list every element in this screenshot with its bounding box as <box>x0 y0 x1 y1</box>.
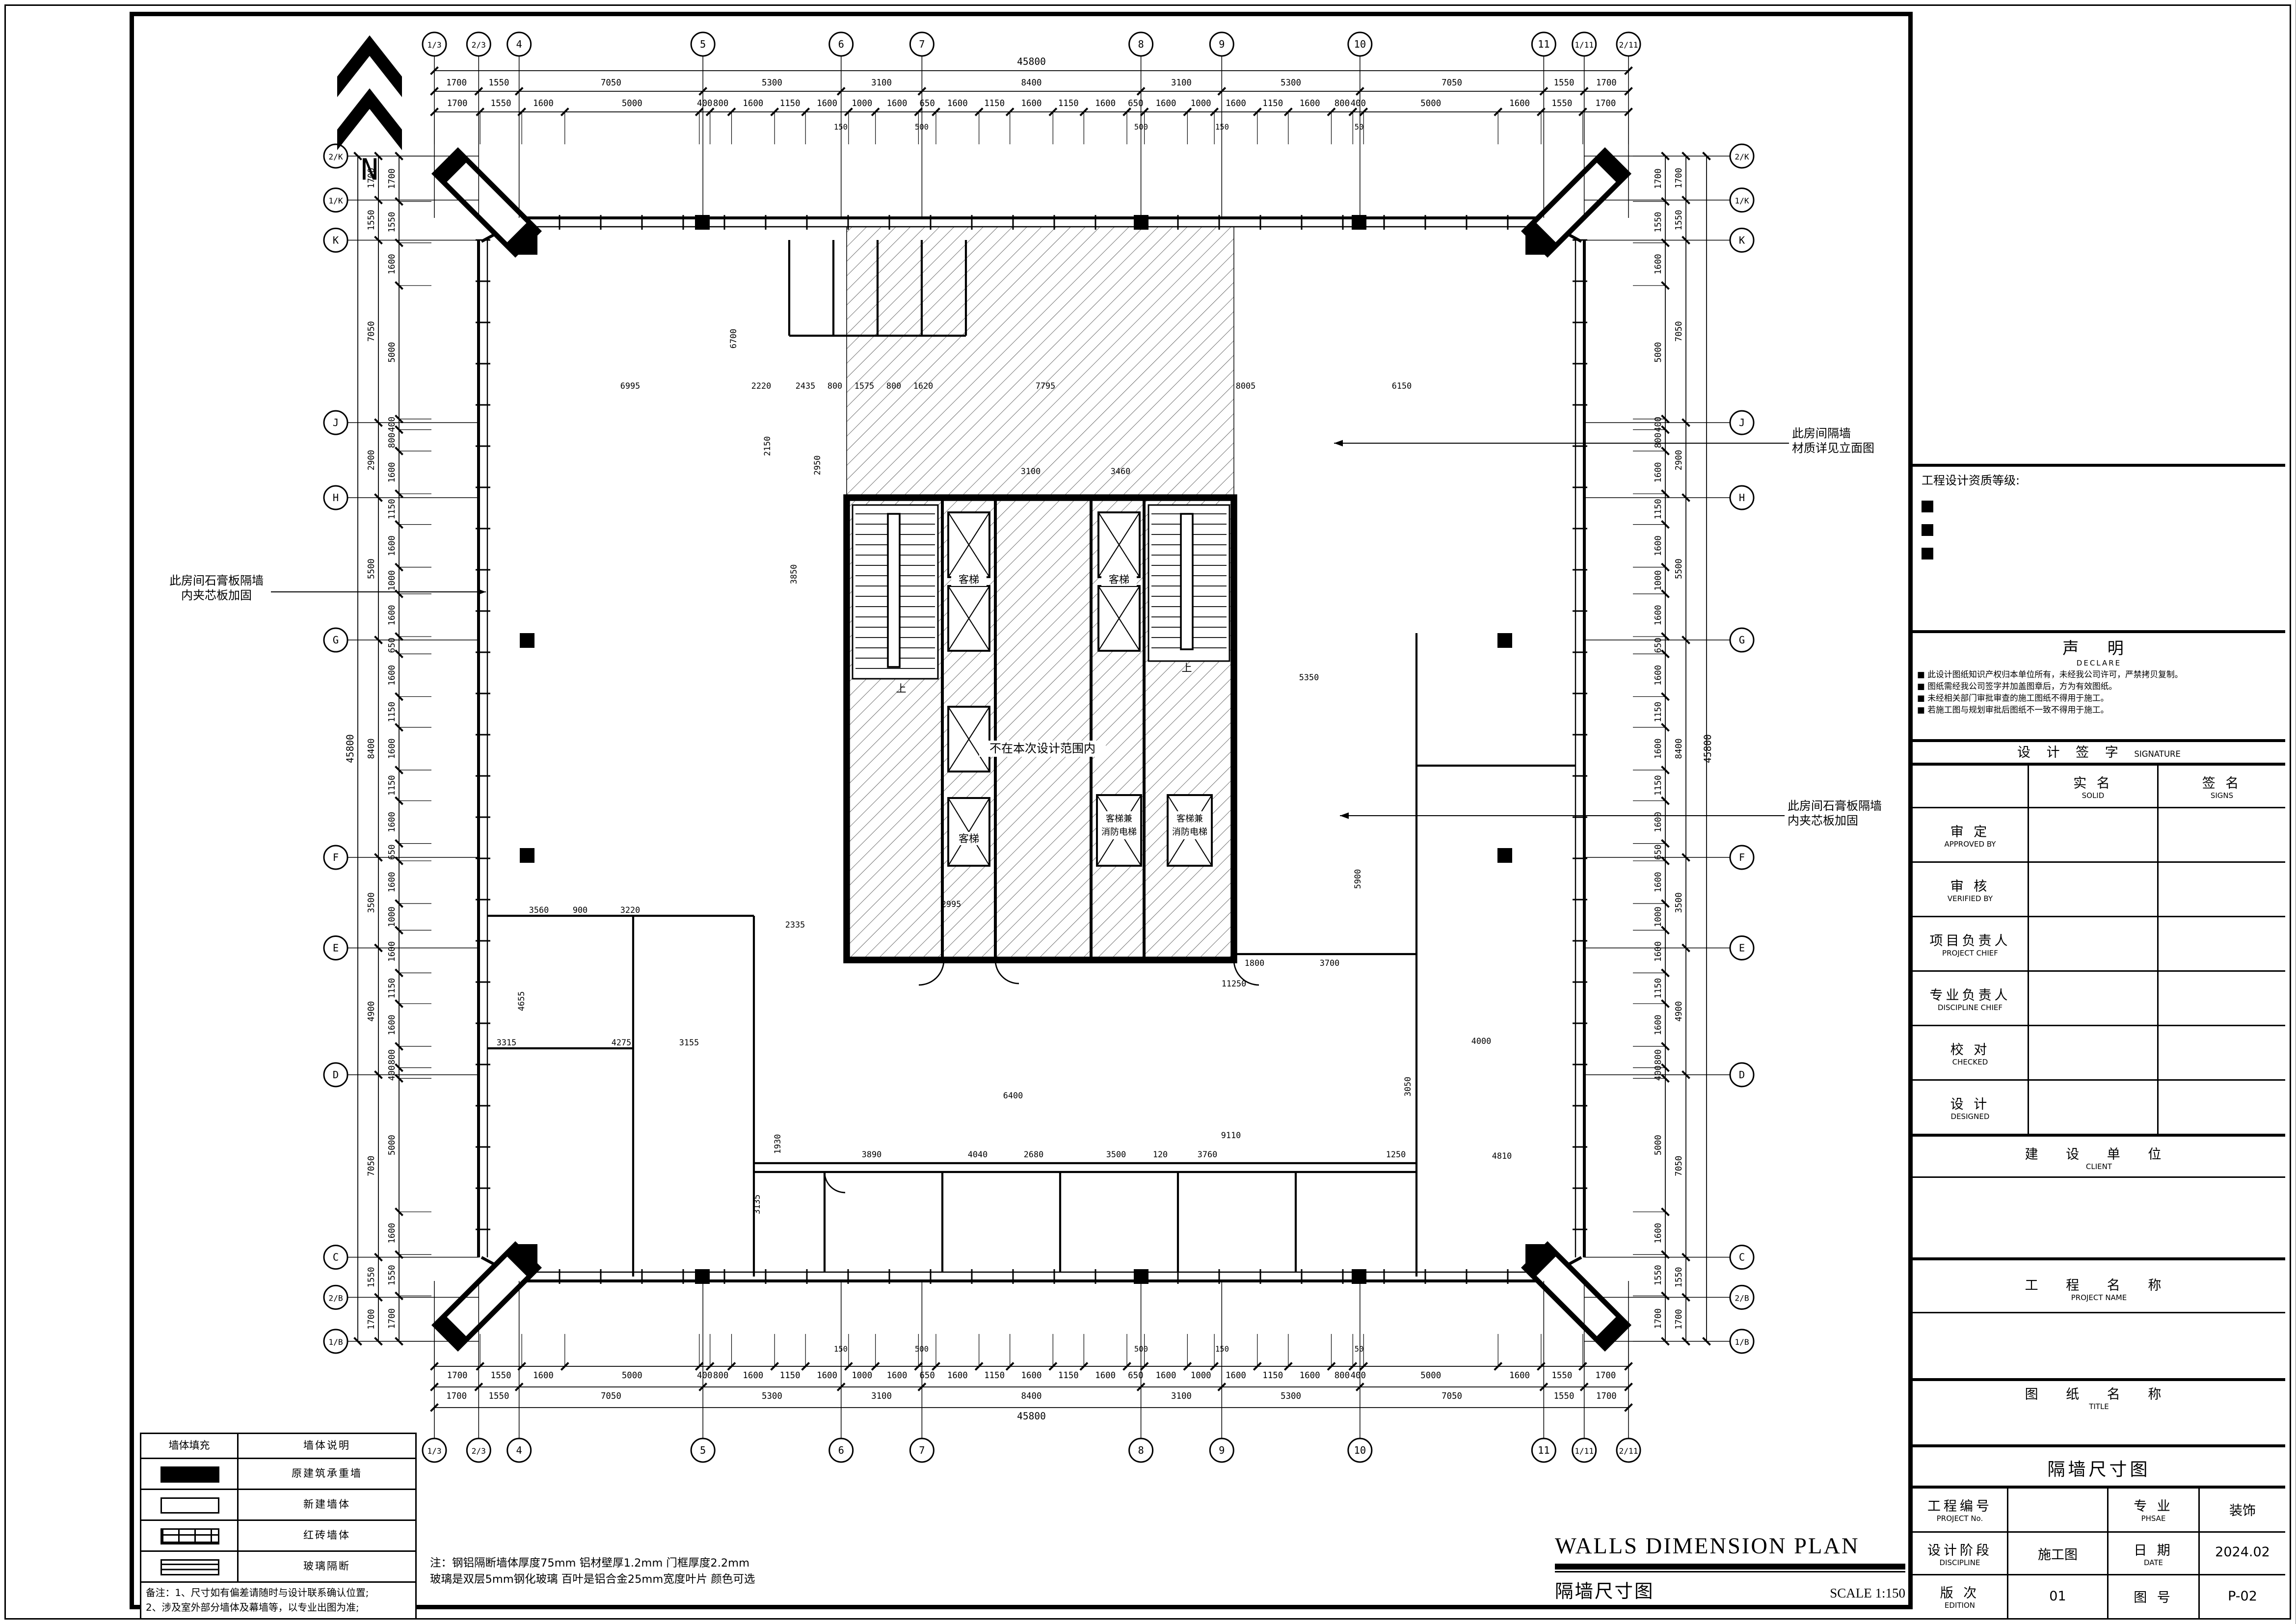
signature-row-approved: 审 定APPROVED BY <box>1913 807 2285 861</box>
legend-row-bearing-wall: 原建筑承重墙 <box>141 1458 415 1489</box>
date-zh: 日 期 <box>2134 1540 2173 1559</box>
signature-row-discipline-chief: 专业负责人DISCIPLINE CHIEF <box>1913 970 2285 1025</box>
drawing-title-area: WALLS DIMENSION PLAN 隔墙尺寸图 SCALE 1:150 <box>1555 1534 1905 1603</box>
project-name-zh: 工 程 名 称 <box>1913 1275 2285 1294</box>
designed-en: DESIGNED <box>1951 1113 1990 1121</box>
designed-sign-cell <box>2157 1081 2285 1134</box>
sheet-title-section: 图 纸 名 称 TITLE <box>1913 1378 2285 1444</box>
signature-row-verified: 审 核VERIFIED BY <box>1913 861 2285 916</box>
designed-zh: 设 计 <box>1950 1093 1990 1113</box>
client-zh: 建 设 单 位 <box>1913 1144 2285 1163</box>
discipline-chief-en: DISCIPLINE CHIEF <box>1938 1004 2002 1012</box>
drawing-title-zh: 隔墙尺寸图 <box>1555 1575 1655 1603</box>
stage-en: DISCIPLINE <box>1940 1559 1980 1568</box>
sign-zh: 签 名 <box>2202 772 2242 792</box>
legend-swatch-glass <box>160 1559 219 1575</box>
qualification-label: 工程设计资质等级: <box>1922 473 2276 489</box>
wall-legend: 墙体填充 墙体说明 原建筑承重墙 新建墙体 红砖墙体 玻璃隔断 备注：1、尺寸如… <box>140 1433 417 1620</box>
client-divider <box>1913 1176 2285 1178</box>
sheet-no-zh: 图 号 <box>2134 1588 2173 1607</box>
legend-label-brick-wall: 红砖墙体 <box>239 1521 415 1550</box>
qualification-bullet-3 <box>1922 548 1933 559</box>
declare-section: 声 明 DECLARE 此设计图纸知识产权归本单位所有，未经我公司许可，严禁拷贝… <box>1913 630 2285 739</box>
discipline-chief-real-cell <box>2028 972 2157 1025</box>
legend-header-fill: 墙体填充 <box>141 1434 239 1458</box>
meta-grid: 工程编号PROJECT No. 专 业PHSAE 装饰 设计阶段DISCIPLI… <box>1913 1486 2285 1618</box>
declare-title-en: DECLARE <box>1913 660 2285 668</box>
sign-en: SIGNS <box>2211 792 2233 800</box>
sheet-title-value: 隔墙尺寸图 <box>1913 1456 2285 1481</box>
date-value: 2024.02 <box>2198 1532 2285 1574</box>
signature-row-designed: 设 计DESIGNED <box>1913 1079 2285 1134</box>
title-block-logo-area <box>1913 12 2285 464</box>
project-no-en: PROJECT No. <box>1937 1515 1983 1523</box>
legend-row-glass-partition: 玻璃隔断 <box>141 1550 415 1581</box>
checked-zh: 校 对 <box>1950 1039 1990 1058</box>
legend-label-new-wall: 新建墙体 <box>239 1490 415 1519</box>
qualification-section: 工程设计资质等级: <box>1913 464 2285 630</box>
project-no-zh: 工程编号 <box>1927 1495 1992 1515</box>
project-name-en: PROJECT NAME <box>1913 1294 2285 1303</box>
qualification-bullet-2 <box>1922 524 1933 536</box>
real-name-zh: 实 名 <box>2073 772 2113 792</box>
designed-real-cell <box>2028 1081 2157 1134</box>
declare-items: 此设计图纸知识产权归本单位所有，未经我公司许可，严禁拷贝复制。 图纸需经我公司签… <box>1913 670 2285 717</box>
drawing-sheet: 客梯客梯客梯客梯兼消防电梯客梯兼消防电梯不在本次设计范围内上上458001700… <box>0 0 2296 1624</box>
verified-real-cell <box>2028 863 2157 916</box>
checked-sign-cell <box>2157 1026 2285 1079</box>
sheet-title-en: TITLE <box>1913 1403 2285 1412</box>
legend-header-desc: 墙体说明 <box>239 1434 415 1458</box>
project-name-section: 工 程 名 称 PROJECT NAME <box>1913 1257 2285 1378</box>
title-rule-thin <box>1555 1571 1905 1572</box>
client-en: CLIENT <box>1913 1163 2285 1172</box>
signature-row-project-chief: 项目负责人PROJECT CHIEF <box>1913 916 2285 970</box>
signature-role-col <box>1913 766 2028 807</box>
sheet-title-value-section: 隔墙尺寸图 <box>1913 1444 2285 1486</box>
legend-note-2: 2、涉及室外部分墙体及幕墙等，以专业出图为准; <box>146 1600 411 1615</box>
approved-sign-cell <box>2157 808 2285 861</box>
verified-zh: 审 核 <box>1950 876 1990 895</box>
signature-real-name-col: 实 名 SOLID <box>2028 766 2157 807</box>
client-section: 建 设 单 位 CLIENT <box>1913 1134 2285 1257</box>
wall-note-line1: 注：钢铝隔断墙体厚度75mm 铝材壁厚1.2mm 门框厚度2.2mm <box>430 1555 916 1571</box>
approved-zh: 审 定 <box>1950 821 1990 840</box>
approved-real-cell <box>2028 808 2157 861</box>
legend-swatch-brick <box>160 1528 219 1544</box>
drawing-title-en: WALLS DIMENSION PLAN <box>1555 1534 1905 1561</box>
date-en: DATE <box>2144 1559 2163 1568</box>
legend-swatch-solid-black <box>160 1466 219 1482</box>
sheet-title-zh: 图 纸 名 称 <box>1913 1384 2285 1403</box>
project-chief-real-cell <box>2028 917 2157 970</box>
edition-en: EDITION <box>1945 1602 1975 1611</box>
project-chief-en: PROJECT CHIEF <box>1942 949 1998 958</box>
title-rule-thick <box>1555 1564 1905 1569</box>
stage-value: 施工图 <box>2007 1532 2107 1574</box>
declare-item: 若施工图与规划审批后图纸不一致不得用于施工。 <box>1917 705 2281 717</box>
checked-en: CHECKED <box>1952 1058 1988 1067</box>
verified-en: VERIFIED BY <box>1948 895 1993 904</box>
title-block: 工程设计资质等级: 声 明 DECLARE 此设计图纸知识产权归本单位所有，未经… <box>1908 12 2285 1609</box>
wall-note-line2: 玻璃是双层5mm钢化玻璃 百叶是铝合金25mm宽度叶片 颜色可选 <box>430 1571 916 1587</box>
qualification-bullet-1 <box>1922 501 1933 512</box>
declare-item: 此设计图纸知识产权归本单位所有，未经我公司许可，严禁拷贝复制。 <box>1917 670 2281 682</box>
project-divider <box>1913 1312 2285 1313</box>
signature-title-en: SIGNATURE <box>2134 751 2181 760</box>
verified-sign-cell <box>2157 863 2285 916</box>
project-chief-zh: 项目负责人 <box>1929 930 2010 949</box>
approved-en: APPROVED BY <box>1944 840 1996 849</box>
real-name-en: SOLID <box>2082 792 2105 800</box>
checked-real-cell <box>2028 1026 2157 1079</box>
sheet-no-value: P-02 <box>2198 1576 2285 1618</box>
legend-note-1: 备注：1、尺寸如有偏差请随时与设计联系确认位置; <box>146 1586 411 1600</box>
discipline-chief-zh: 专业负责人 <box>1929 985 2010 1004</box>
drawing-scale: SCALE 1:150 <box>1830 1586 1905 1600</box>
legend-row-new-wall: 新建墙体 <box>141 1489 415 1519</box>
stage-zh: 设计阶段 <box>1927 1540 1992 1559</box>
project-no-value <box>2007 1489 2107 1531</box>
signature-row-checked: 校 对CHECKED <box>1913 1025 2285 1079</box>
legend-swatch-outline <box>160 1497 219 1513</box>
project-chief-sign-cell <box>2157 917 2285 970</box>
legend-row-brick-wall: 红砖墙体 <box>141 1519 415 1550</box>
legend-label-bearing-wall: 原建筑承重墙 <box>239 1459 415 1489</box>
edition-zh: 版 次 <box>1940 1583 1980 1602</box>
wall-construction-note: 注：钢铝隔断墙体厚度75mm 铝材壁厚1.2mm 门框厚度2.2mm 玻璃是双层… <box>430 1555 916 1587</box>
declare-item: 未经相关部门审批审查的施工图纸不得用于施工。 <box>1917 693 2281 705</box>
legend-label-glass-partition: 玻璃隔断 <box>239 1552 415 1581</box>
edition-value: 01 <box>2007 1576 2107 1618</box>
phase-value: 装饰 <box>2198 1489 2285 1531</box>
signature-title-zh: 设 计 签 字 <box>2017 746 2124 761</box>
discipline-chief-sign-cell <box>2157 972 2285 1025</box>
phase-zh: 专 业 <box>2134 1495 2173 1515</box>
signature-header: 设 计 签 字 SIGNATURE <box>1913 739 2285 763</box>
signature-sign-col: 签 名 SIGNS <box>2157 766 2285 807</box>
phase-en: PHSAE <box>2141 1515 2166 1523</box>
declare-title-zh: 声 明 <box>1913 636 2285 660</box>
declare-item: 图纸需经我公司签字并加盖图章后，方为有效图纸。 <box>1917 682 2281 693</box>
signature-column-headers: 实 名 SOLID 签 名 SIGNS <box>1913 763 2285 807</box>
